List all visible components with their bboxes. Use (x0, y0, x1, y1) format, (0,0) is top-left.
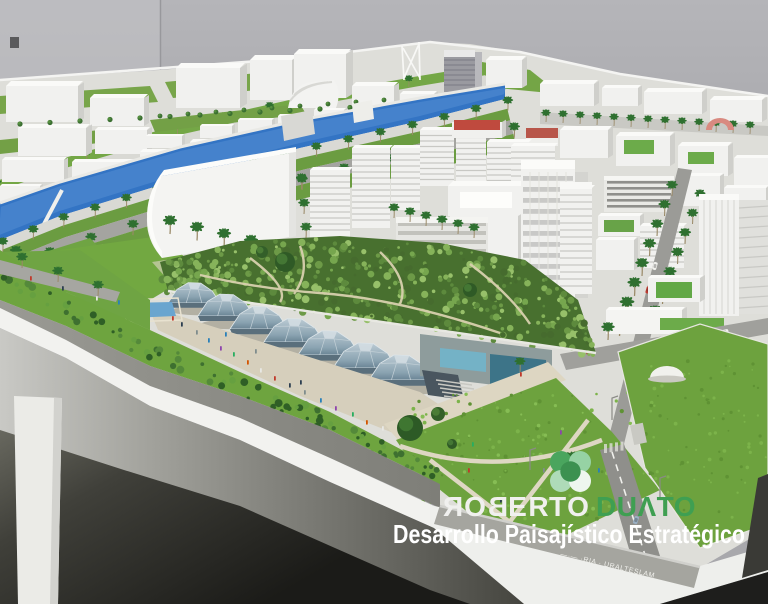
svg-text:E: E (508, 491, 527, 522)
svg-text:O: O (567, 491, 589, 522)
svg-text:DUΛTO: DUΛTO (596, 491, 696, 522)
svg-text:T: T (549, 491, 566, 522)
svg-text:R: R (443, 491, 463, 522)
svg-text:Desarrollo Paisajístico Estrat: Desarrollo Paisajístico Estratégico (393, 519, 745, 549)
svg-text:R: R (528, 491, 548, 522)
svg-text:O: O (464, 491, 486, 522)
svg-text:B: B (488, 491, 508, 522)
